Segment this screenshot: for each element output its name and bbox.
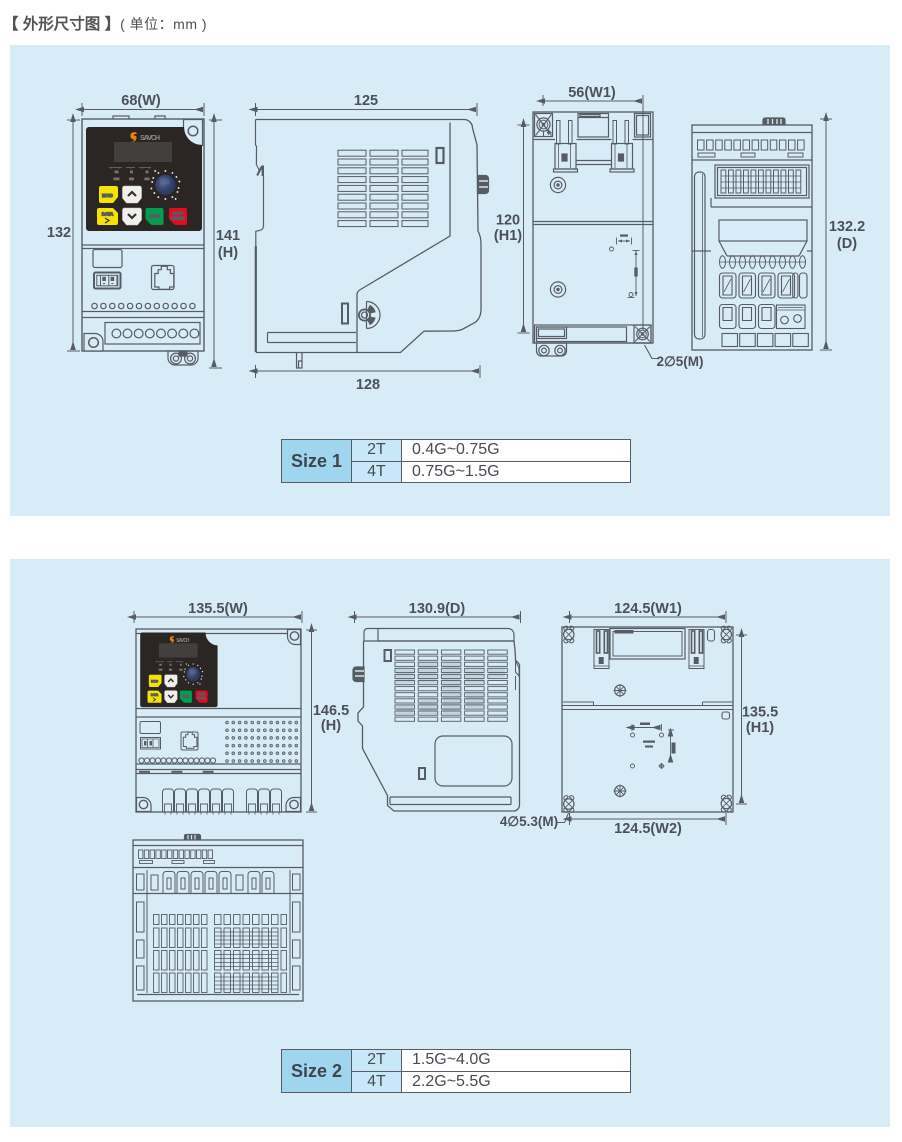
svg-text:56(W1): 56(W1)	[568, 85, 616, 101]
svg-text:124.5(W2): 124.5(W2)	[614, 821, 682, 837]
svg-text:(D): (D)	[837, 236, 857, 252]
svg-text:141: 141	[216, 228, 240, 244]
svg-text:130.9(D): 130.9(D)	[409, 601, 466, 617]
svg-text:132.2: 132.2	[829, 219, 865, 235]
svg-text:(H): (H)	[321, 718, 341, 734]
svg-text:135.5(W): 135.5(W)	[188, 601, 248, 617]
svg-text:132: 132	[47, 225, 71, 241]
svg-text:128: 128	[356, 377, 380, 393]
svg-text:146.5: 146.5	[313, 703, 349, 719]
svg-text:68(W): 68(W)	[121, 93, 161, 109]
svg-text:120: 120	[496, 213, 520, 229]
svg-text:(H): (H)	[218, 245, 238, 261]
svg-text:(H1): (H1)	[746, 720, 774, 736]
svg-text:(H1): (H1)	[494, 228, 522, 244]
svg-text:2∅5(M): 2∅5(M)	[656, 354, 703, 369]
svg-text:124.5(W1): 124.5(W1)	[614, 601, 682, 617]
svg-text:125: 125	[354, 93, 378, 109]
svg-text:4∅5.3(M): 4∅5.3(M)	[500, 814, 558, 829]
svg-text:135.5: 135.5	[742, 705, 778, 721]
